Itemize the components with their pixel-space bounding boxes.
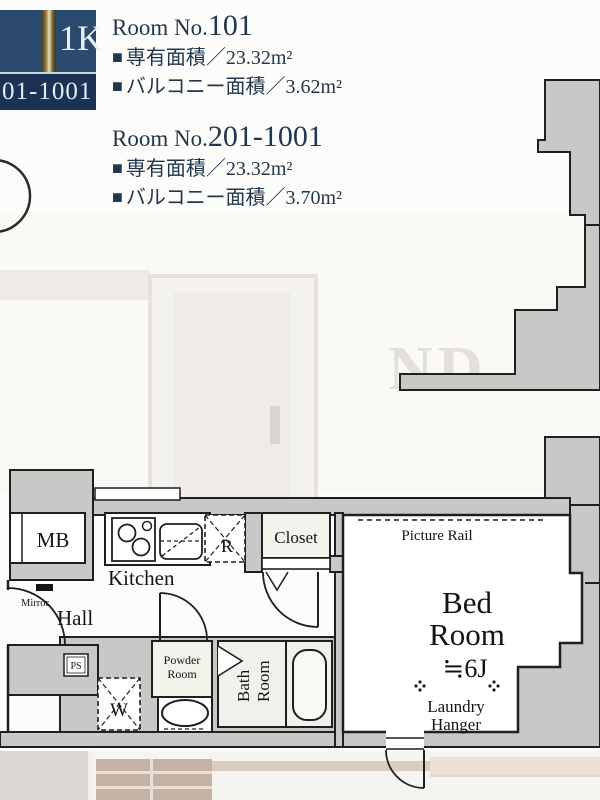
mb-label: MB — [37, 528, 70, 552]
balcony-area-value: バルコニー面積／3.62m² — [126, 76, 342, 98]
wall-right-top — [545, 437, 600, 505]
washer-label: W — [110, 700, 128, 721]
pipe-space: PS — [64, 654, 88, 676]
room-no-value: 201-1001 — [208, 120, 323, 153]
floor-type-label: 1K — [59, 20, 103, 56]
sink-icon — [160, 524, 202, 559]
balcony-area-line: ■バルコニー面積／3.70m² — [112, 184, 342, 213]
closet-label: Closet — [274, 528, 318, 547]
laundry-label-line1: Laundry — [427, 697, 485, 716]
floorplan-type-badge: 1K 01-1001 — [0, 10, 96, 110]
fridge-space: R — [205, 515, 245, 562]
stove-icon — [112, 518, 155, 561]
fridge-label: R — [221, 536, 233, 556]
room-number-line: Room No.201-1001 — [112, 121, 342, 155]
washer-space: W — [98, 678, 140, 730]
laundry-label-line2: Hanger — [431, 715, 481, 734]
room-number-line: Room No.101 — [112, 10, 342, 44]
room-no-prefix: Room No. — [112, 15, 208, 40]
room-range-label: 01-1001 — [0, 72, 96, 110]
wall-top-notch — [95, 488, 180, 500]
bathtub-icon — [293, 650, 326, 720]
wall-closet-west — [245, 513, 262, 572]
kitchen-label: Kitchen — [108, 566, 175, 590]
exclusive-area-line: ■専有面積／23.32m² — [112, 155, 342, 184]
door-arc — [386, 750, 424, 788]
unit-info-101: Room No.101 ■専有面積／23.32m² ■バルコニー面積／3.62m… — [112, 10, 342, 102]
balcony-area-line: ■バルコニー面積／3.62m² — [112, 73, 342, 102]
bath-label-line2: Room — [254, 660, 273, 702]
bath-room: Bath Room — [218, 641, 332, 727]
compass-icon — [0, 160, 30, 232]
bullet-icon: ■ — [112, 47, 123, 67]
closet-sliding-door — [262, 558, 330, 569]
balcony-area-value: バルコニー面積／3.70m² — [126, 187, 342, 209]
powder-label-line2: Room — [167, 667, 197, 681]
bullet-icon: ■ — [112, 76, 123, 96]
exclusive-area-line: ■専有面積／23.32m² — [112, 44, 342, 73]
kitchen-counter — [105, 513, 210, 565]
bedroom-size-label: ≒6J — [443, 654, 488, 683]
door-arc — [160, 593, 207, 640]
bedroom-label-line2: Room — [429, 617, 505, 652]
building-outline-upper — [538, 80, 600, 225]
bedroom-label-line1: Bed — [442, 585, 492, 620]
hall-label: Hall — [57, 606, 93, 630]
bath-label-line1: Bath — [234, 669, 253, 702]
gold-stripe-icon — [42, 10, 56, 72]
powder-room: Powder Room — [152, 641, 212, 697]
room-no-value: 101 — [208, 9, 253, 42]
powder-label-line1: Powder — [164, 653, 201, 667]
bullet-icon: ■ — [112, 187, 123, 207]
balcony-door-opening — [386, 729, 424, 749]
ps-label: PS — [70, 661, 81, 672]
bullet-icon: ■ — [112, 158, 123, 178]
exclusive-area-value: 専有面積／23.32m² — [126, 158, 293, 180]
washbasin-icon — [158, 697, 212, 732]
room-no-prefix: Room No. — [112, 126, 208, 151]
building-outline-middle — [400, 225, 600, 390]
badge-top: 1K — [0, 10, 96, 72]
listing-floorplan-page: ND — [0, 0, 600, 800]
wall-door-stub — [330, 556, 343, 572]
exclusive-area-value: 専有面積／23.32m² — [126, 47, 293, 69]
unit-info-201-1001: Room No.201-1001 ■専有面積／23.32m² ■バルコニー面積／… — [112, 121, 342, 213]
picture-rail-label: Picture Rail — [401, 528, 472, 544]
powder-room-door — [160, 593, 207, 640]
mirror-label: Mirror — [21, 598, 49, 609]
mirror-icon — [36, 584, 53, 591]
bedroom-door — [263, 572, 318, 627]
wall-bottom-left — [0, 732, 343, 747]
building-outline-shapes — [400, 80, 600, 390]
